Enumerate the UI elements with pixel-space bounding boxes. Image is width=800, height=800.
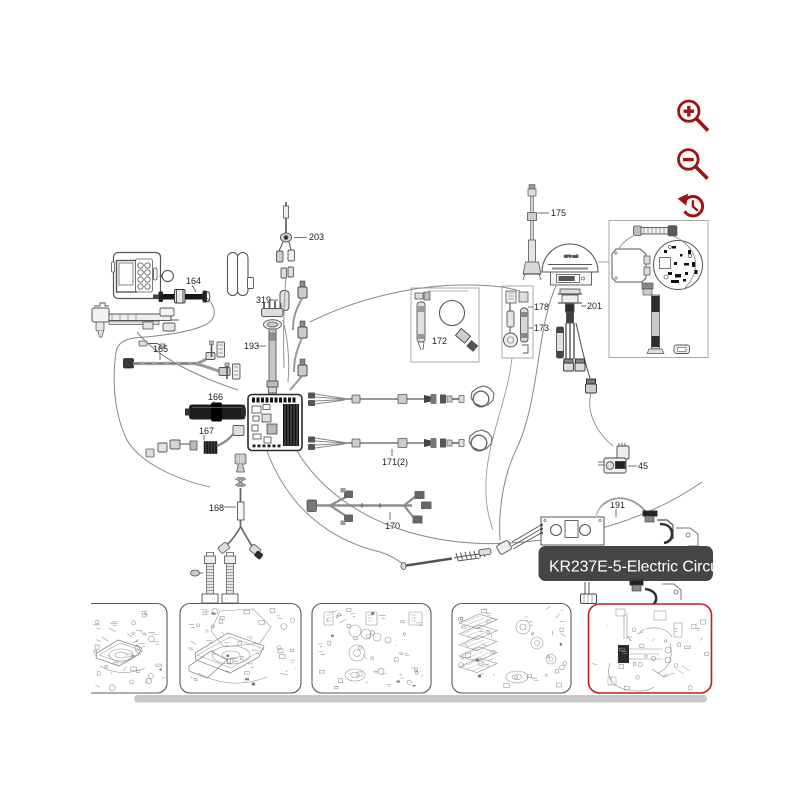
svg-text:KR237E-5-Electric Circuit: KR237E-5-Electric Circuit [549,559,727,576]
svg-text:167: 167 [199,426,214,436]
svg-text:173: 173 [534,323,549,333]
svg-text:GPS unit: GPS unit [564,255,578,259]
svg-text:178: 178 [534,302,549,312]
svg-text:166: 166 [208,392,223,402]
svg-text:165: 165 [153,344,168,354]
svg-text:171(2): 171(2) [382,457,408,467]
svg-text:172: 172 [432,336,447,346]
svg-text:201: 201 [587,301,602,311]
svg-text:175: 175 [551,208,566,218]
svg-text:164: 164 [186,276,201,286]
svg-text:193: 193 [244,341,259,351]
svg-text:45: 45 [638,461,648,471]
svg-text:203: 203 [309,232,324,242]
svg-text:168: 168 [209,503,224,513]
svg-text:170: 170 [385,521,400,531]
